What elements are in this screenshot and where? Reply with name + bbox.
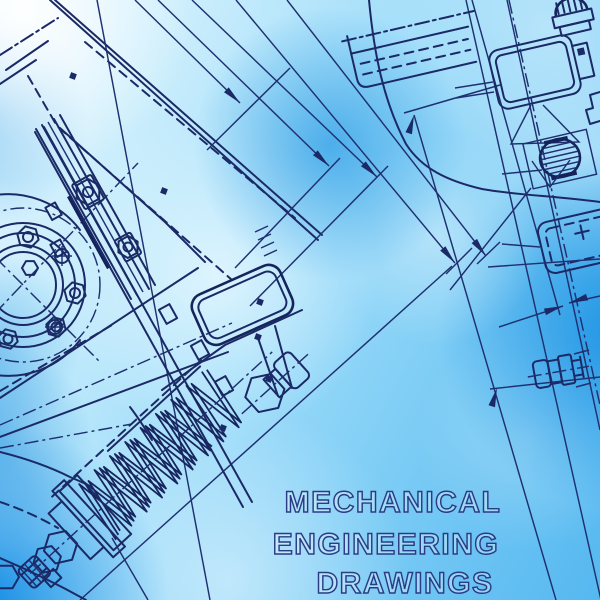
svg-text:ENGINEERING: ENGINEERING	[273, 528, 500, 561]
svg-text:MECHANICAL: MECHANICAL	[285, 486, 502, 519]
svg-text:DRAWINGS: DRAWINGS	[317, 567, 494, 600]
